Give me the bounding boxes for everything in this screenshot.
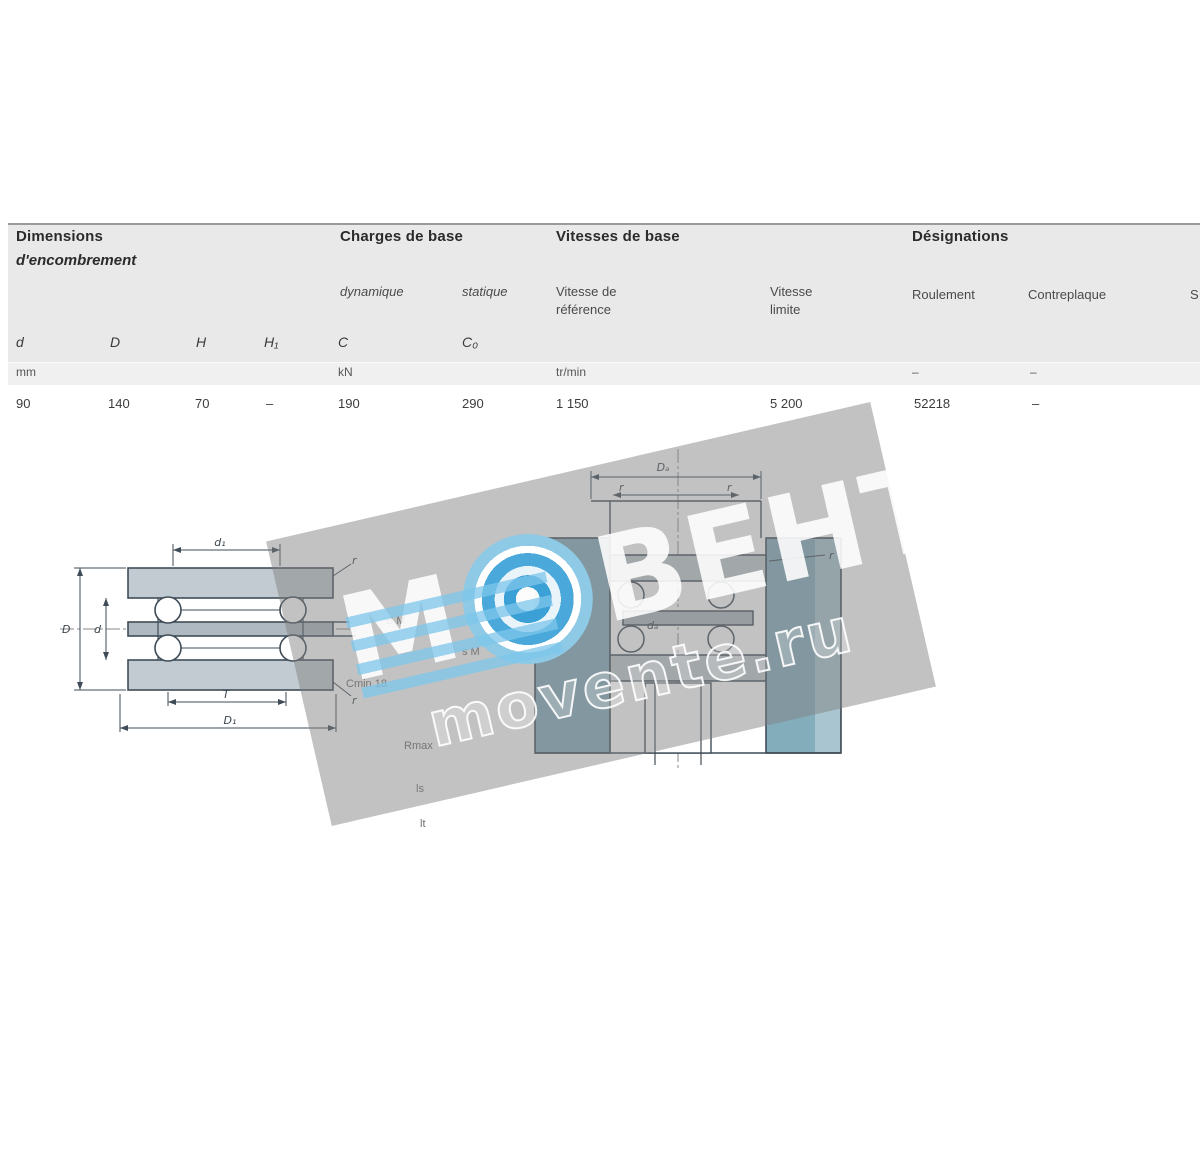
row-vref: 1 150 [556, 396, 589, 411]
dim-label-d: d [94, 623, 102, 636]
col-group-designations: Désignations [912, 228, 1009, 245]
unit-dash-roulement: – [912, 365, 919, 379]
symbol-D: D [110, 334, 120, 350]
col-group-dimensions: Dimensions [16, 228, 103, 245]
unit-mm: mm [16, 365, 36, 379]
symbol-C0: C₀ [462, 334, 478, 350]
col-sub-clipped: S [1190, 287, 1199, 302]
col-sub-vref-1: Vitesse de [556, 284, 616, 299]
col-sub-contreplaque: Contreplaque [1028, 287, 1106, 302]
row-D: 140 [108, 396, 130, 411]
col-group-vitesses: Vitesses de base [556, 228, 680, 245]
catalog-page: Dimensions d'encombrement Charges de bas… [0, 0, 1200, 1165]
row-designation-roulement: 52218 [914, 396, 950, 411]
row-designation-contreplaque: – [1032, 396, 1039, 411]
col-sub-statique: statique [462, 284, 508, 299]
col-group-dimensions-sub: d'encombrement [16, 252, 136, 269]
row-H1: – [266, 396, 273, 411]
unit-kn: kN [338, 365, 353, 379]
row-H: 70 [195, 396, 209, 411]
drawing-fragment-lt: lt [420, 818, 426, 830]
symbol-d: d [16, 334, 24, 350]
dim-label-d1: d₁ [214, 536, 225, 549]
symbol-C: C [338, 334, 348, 350]
unit-dash-contreplaque: – [1030, 365, 1037, 379]
units-row-band [8, 362, 1200, 385]
dim-label-D1: D₁ [224, 714, 237, 727]
row-C: 190 [338, 396, 360, 411]
symbol-H: H [196, 334, 206, 350]
row-C0: 290 [462, 396, 484, 411]
unit-trmin: tr/min [556, 365, 586, 379]
symbol-H1: H₁ [264, 334, 279, 350]
row-d: 90 [16, 396, 30, 411]
row-vlim: 5 200 [770, 396, 803, 411]
col-sub-dynamique: dynamique [340, 284, 404, 299]
col-sub-vlim-2: limite [770, 302, 800, 317]
watermark-letters-vent: ВЕНТ [584, 445, 959, 640]
col-sub-roulement: Roulement [912, 287, 975, 302]
col-sub-vref-2: référence [556, 302, 611, 317]
col-sub-vlim-1: Vitesse [770, 284, 812, 299]
dim-label-D: D [62, 623, 70, 636]
col-group-charges: Charges de base [340, 228, 463, 245]
